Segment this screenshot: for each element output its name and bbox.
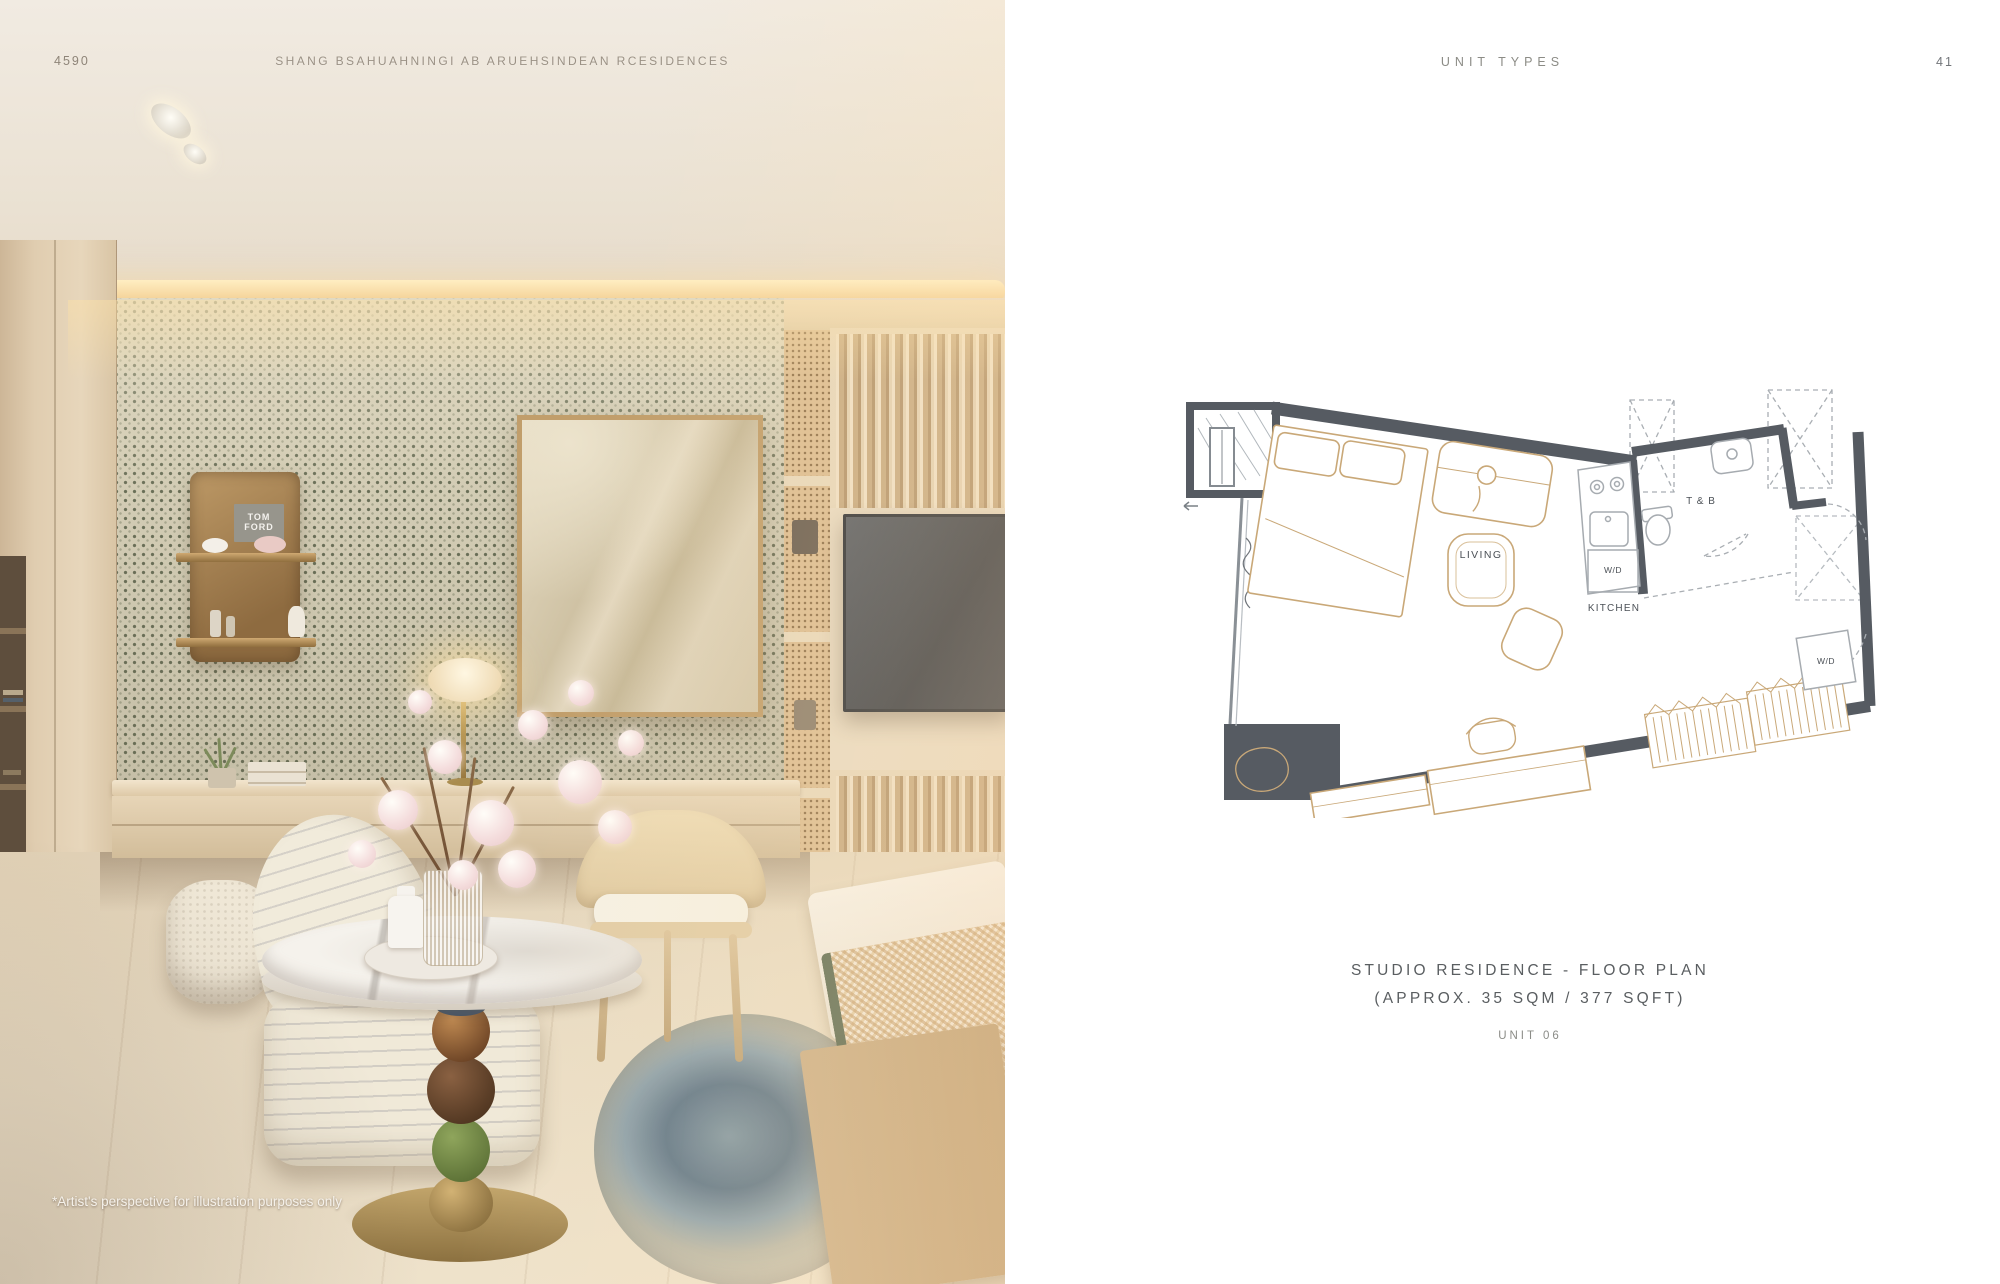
blossom [448,860,478,890]
desk-and-chair [1421,705,1591,815]
coffee-table [1448,534,1514,606]
window-wall [1230,498,1253,726]
blossom [518,710,548,740]
shelf-bowl [254,536,286,553]
shear-wall-block [1224,724,1340,800]
book-spine [3,690,23,695]
desk-books [248,762,306,786]
interior-render-photo: TOM FORD [0,0,1005,1284]
plan-caption-line2: (APPROX. 35 SQM / 377 SQFT) [1180,990,1880,1008]
left-header-title: SHANG BSAHUAHNINGI AB ARUEHSINDEAN RCESI… [0,54,1005,68]
bed-base [800,1023,1005,1284]
shelf-bar [176,638,316,647]
lounge-chair-seat [264,994,540,1166]
blossom [408,690,432,714]
blossom [598,810,632,844]
shelf-vase [210,610,221,637]
blossom [558,760,602,804]
bed [1248,425,1429,617]
plan-caption-line1: STUDIO RESIDENCE - FLOOR PLAN [1180,962,1880,980]
cherry-blossoms [318,670,653,925]
cove-glow [68,300,1005,380]
section-header: UNIT TYPES [1005,55,2000,69]
pedestal-walnut-ball [427,1056,495,1124]
unit-number-label: UNIT 06 [1180,1030,1880,1042]
blossom [428,740,462,774]
shelf-bar [176,553,316,562]
ac-ledge [1190,406,1276,494]
tv-screen [843,514,1005,712]
pedestal-brass-ball [429,1174,493,1232]
shelf-bowl [202,538,228,553]
label-wd-kitchen: W/D [1604,565,1622,575]
plant-pot [208,768,236,788]
book-spine [3,698,23,702]
label-toilet-bath: T & B [1686,496,1716,507]
blossom [498,850,536,888]
niche-object [792,520,818,554]
blossom [618,730,644,756]
wardrobe-hangers-left [1643,690,1755,768]
blossom [348,840,376,868]
floor-plan: LIVING W/D KITCHEN T & B W/D [1180,388,1880,818]
right-page-number: 41 [1936,55,1954,69]
pedestal-green-ball [432,1118,490,1182]
book-spine [3,770,21,775]
blossom [378,790,418,830]
artist-perspective-footnote: *Artist's perspective for illustration p… [52,1194,342,1209]
brochure-spread: TOM FORD [0,0,2000,1284]
brass-wall-shelf [190,472,300,662]
shelf-vase [226,616,235,637]
floor-cushion [1497,604,1566,674]
label-living: LIVING [1460,549,1503,561]
utility-shafts [1630,390,1864,600]
label-wd-closet: W/D [1817,656,1835,666]
label-kitchen: KITCHEN [1588,603,1640,614]
tom-ford-line2: FORD [244,523,274,533]
shelf-vase [288,606,305,637]
blossom [468,800,514,846]
bathroom-fixtures [1641,437,1754,545]
chair-leg [664,930,671,1042]
ceiling [0,0,1005,300]
blossom [568,680,594,706]
niche-object [794,700,816,730]
bookshelf-slot [0,556,26,866]
entry-arrow-icon [1184,502,1198,510]
